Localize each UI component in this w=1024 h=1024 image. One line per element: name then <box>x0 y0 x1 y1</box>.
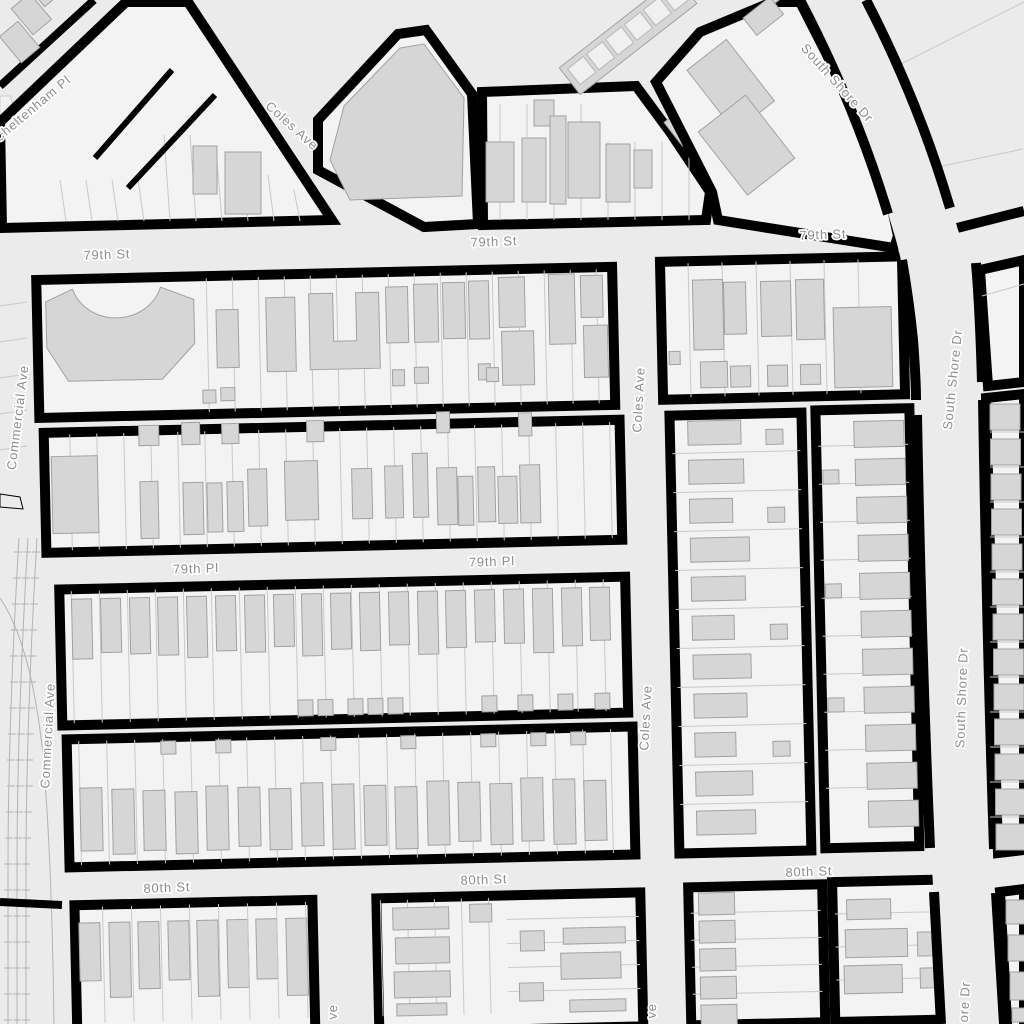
street-label-80th-st: 80th St <box>460 871 507 888</box>
street-label-79th-st: 79th St <box>83 246 130 263</box>
street-label-79th-st: 79th St <box>470 233 517 250</box>
street-label-ve: ve <box>325 1004 341 1020</box>
street-label-commercial-ave: Commercial Ave <box>4 364 32 471</box>
street-label-coles-ave: Coles Ave <box>629 367 647 433</box>
street-label-ve: ve <box>644 1003 660 1019</box>
street-label-80th-st: 80th St <box>785 863 832 880</box>
street-map[interactable]: Cheltenham PlColes AveSouth Shore Dr79th… <box>0 0 1024 1024</box>
street-grid-layer <box>36 256 947 1024</box>
street-label-coles-ave: Coles Ave <box>636 685 654 751</box>
street-label-79th-st: 79th St <box>799 226 846 243</box>
street-label-commercial-ave: Commercial Ave <box>37 683 58 789</box>
street-label-79th-pl: 79th Pl <box>469 553 516 570</box>
street-label-79th-pl: 79th Pl <box>173 560 220 577</box>
street-label-80th-st: 80th St <box>143 879 190 896</box>
map-canvas[interactable]: Cheltenham PlColes AveSouth Shore Dr79th… <box>0 0 1024 1024</box>
street-label-ore-dr: ore Dr <box>956 981 973 1023</box>
